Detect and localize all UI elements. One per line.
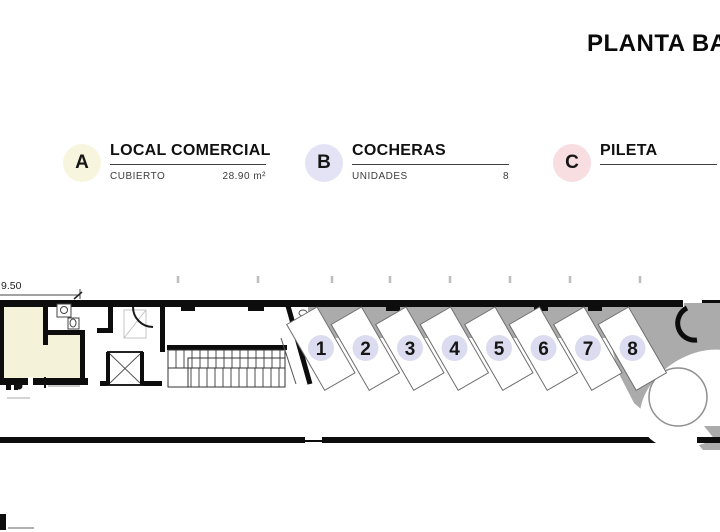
legend-detail-row: UNIDADES 8 bbox=[352, 171, 509, 182]
floor-plan-page: { "title": "PLANTA BAJA", "legend": { "i… bbox=[0, 0, 720, 532]
legend-body: PILETA bbox=[600, 142, 717, 171]
svg-text:8: 8 bbox=[627, 339, 638, 360]
legend-title: COCHERAS bbox=[352, 142, 509, 165]
dimension-label: 9.50 bbox=[1, 280, 22, 292]
site-marks bbox=[7, 377, 80, 528]
svg-text:3: 3 bbox=[405, 339, 416, 360]
page-title: PLANTA BAJA bbox=[587, 30, 720, 58]
boundary-tick-marks bbox=[178, 276, 640, 283]
legend-key-badge-c: C bbox=[553, 144, 591, 182]
bottom-right-wall bbox=[697, 437, 720, 443]
svg-text:5: 5 bbox=[494, 339, 505, 360]
legend-key-badge-b: B bbox=[305, 144, 343, 182]
parking-spaces: 1 2 3 4 5 6 7 bbox=[287, 307, 667, 390]
legend-item-cocheras: B COCHERAS UNIDADES 8 bbox=[305, 142, 509, 182]
svg-text:6: 6 bbox=[538, 339, 549, 360]
svg-text:4: 4 bbox=[449, 339, 460, 360]
legend-key-badge-a: A bbox=[63, 144, 101, 182]
legend-item-pileta: C PILETA bbox=[553, 142, 717, 171]
legend-title: PILETA bbox=[600, 142, 717, 165]
legend-body: LOCAL COMERCIAL CUBIERTO 28.90 m² bbox=[110, 142, 266, 182]
legend-detail-label: CUBIERTO bbox=[110, 171, 165, 182]
legend-detail-value: 28.90 m² bbox=[223, 171, 266, 182]
svg-text:1: 1 bbox=[316, 339, 327, 360]
legend-detail-label: UNIDADES bbox=[352, 171, 408, 182]
staircase bbox=[168, 350, 285, 387]
floor-plan-drawing: 1 2 3 4 5 6 7 bbox=[0, 268, 720, 532]
svg-text:2: 2 bbox=[360, 339, 371, 360]
svg-text:7: 7 bbox=[583, 339, 594, 360]
dimension-annotation: 9.50 bbox=[0, 280, 82, 299]
legend-detail-value: 8 bbox=[503, 171, 509, 182]
legend-body: COCHERAS UNIDADES 8 bbox=[352, 142, 509, 182]
legend-detail-row: CUBIERTO 28.90 m² bbox=[110, 171, 266, 182]
room-wall-opening bbox=[28, 377, 33, 386]
legend-item-local-comercial: A LOCAL COMERCIAL CUBIERTO 28.90 m² bbox=[63, 142, 266, 182]
elevator-shaft bbox=[106, 352, 144, 385]
legend-title: LOCAL COMERCIAL bbox=[110, 142, 266, 165]
